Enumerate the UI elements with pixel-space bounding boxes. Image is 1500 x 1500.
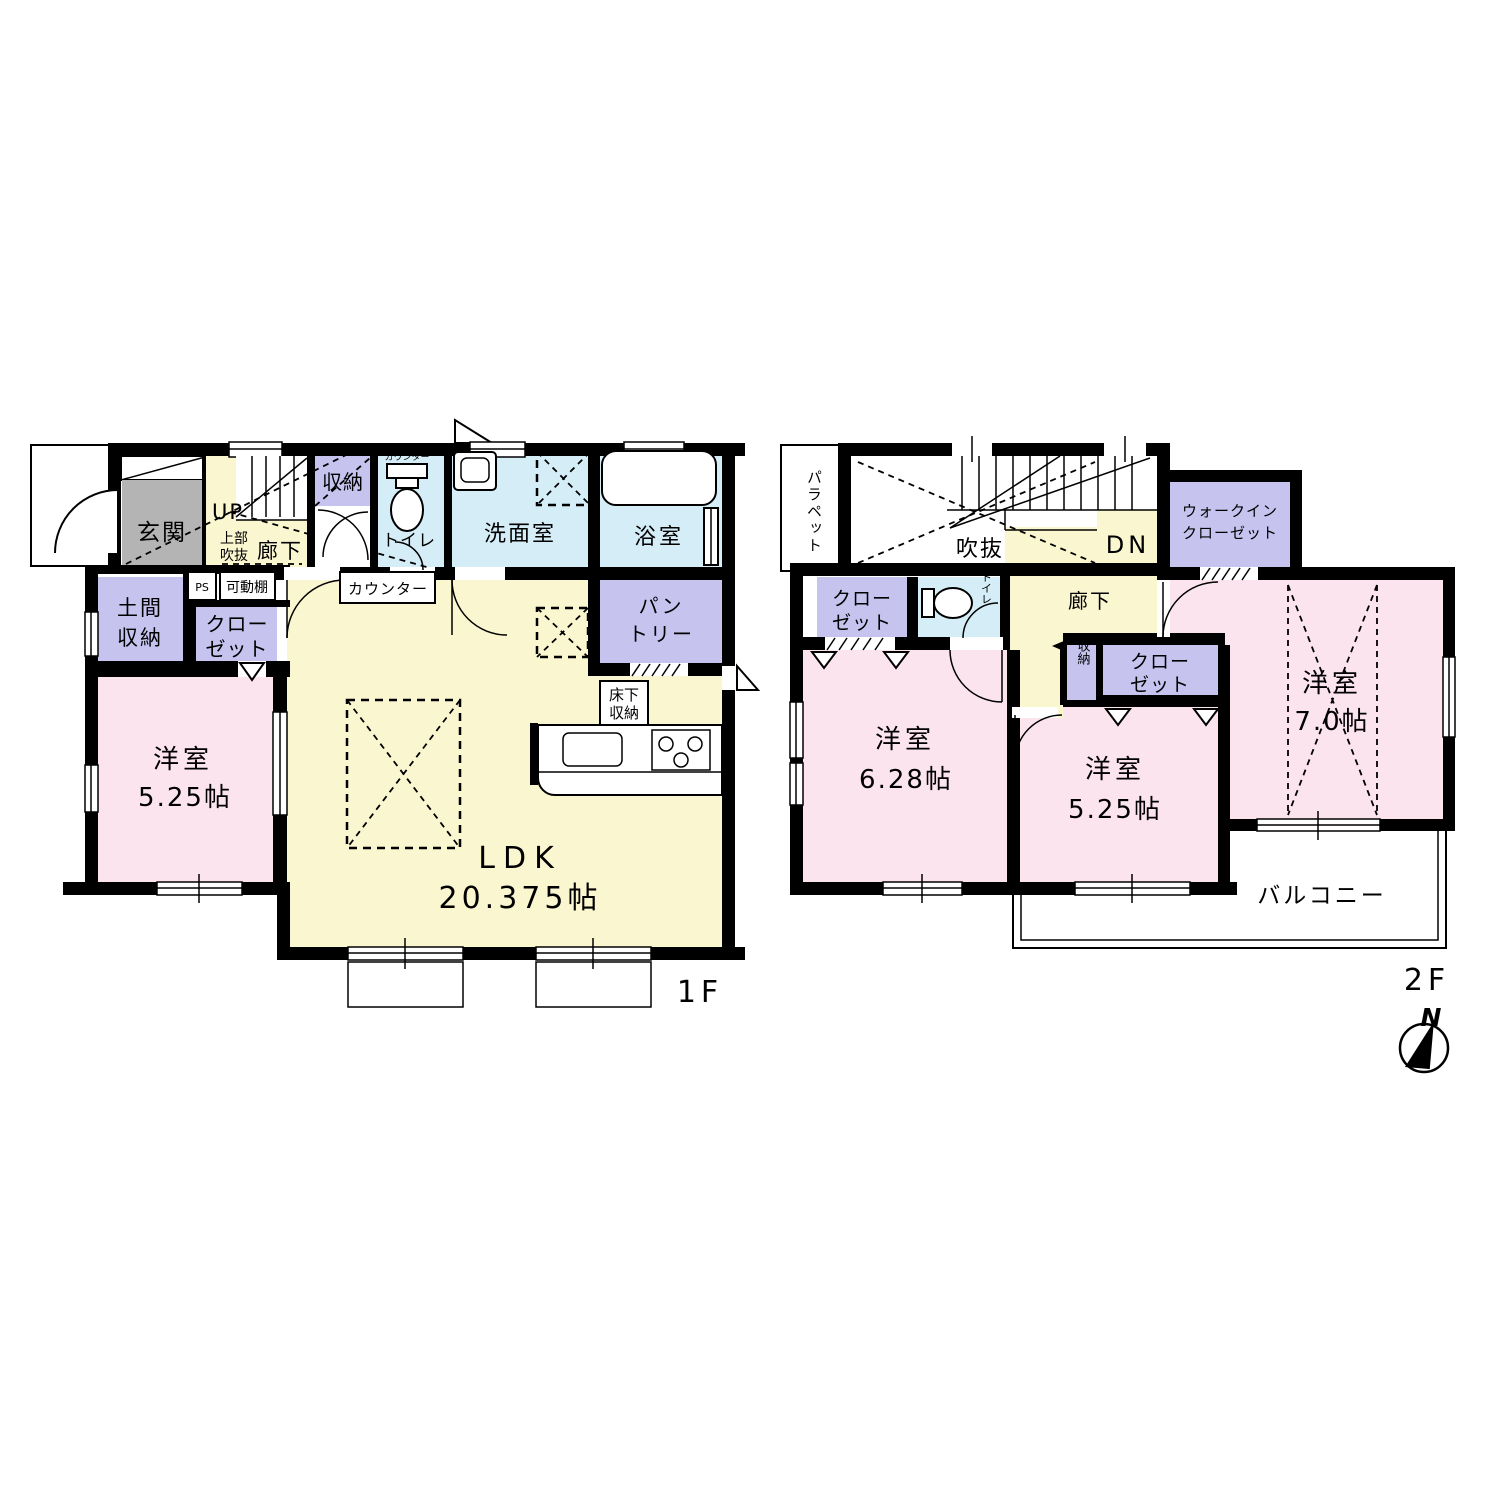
wall-closet-toilet-2f [907, 577, 918, 645]
label-ldk-1: LDK [478, 841, 562, 876]
wall-toilet-senmen [444, 443, 452, 567]
wall-bottom-1f [277, 947, 745, 960]
label-shuunou-1f: 収納 [322, 470, 364, 494]
label-closet-left-2: ゼット [832, 612, 892, 634]
label-closet1f-2: ゼット [206, 637, 269, 661]
floor2-plan: パラペット 吹抜 DN ウォークイン クローゼット クロー ゼット トイレ 廊下… [781, 436, 1455, 998]
room-rouka-2f-dn [1097, 510, 1157, 530]
label-rouka-1f: 廊下 [257, 539, 303, 563]
label-pantry-1: パン [639, 594, 684, 618]
opening-senmen [455, 567, 505, 580]
wall-525-left [1007, 650, 1020, 883]
floor1-plan: 玄関 UP 上部 吹抜 廊下 収納 カウンター トイレ 洗面室 浴室 パン トリ… [31, 420, 758, 1010]
room-youshitsu-525-1f [98, 677, 273, 882]
floorplan-page: 玄関 UP 上部 吹抜 廊下 収納 カウンター トイレ 洗面室 浴室 パン トリ… [0, 0, 1500, 1500]
label-joubu-2: 吹抜 [220, 548, 248, 564]
label-senmenshitsu: 洗面室 [484, 522, 556, 547]
label-closet-left-1: クロー [832, 588, 892, 610]
label-shuunou-2f: 収納 [1075, 639, 1091, 666]
opening-kitchen-door [722, 666, 735, 690]
label-wic-1: ウォークイン [1182, 502, 1278, 520]
wall-525-70-divider [1218, 645, 1230, 895]
label-ldk-2: 20.375帖 [439, 881, 602, 916]
floorplan-drawing: 玄関 UP 上部 吹抜 廊下 収納 カウンター トイレ 洗面室 浴室 パン トリ… [0, 0, 1500, 1500]
label-joubu-1: 上部 [220, 531, 248, 547]
wall-right-1f [722, 443, 735, 960]
label-pantry-2: トリー [628, 622, 694, 646]
wall-pantry-left [588, 580, 600, 676]
label-youshitsu525-1f-1: 洋室 [153, 745, 213, 775]
wall-wic-top [1157, 470, 1302, 482]
entry-door-arc-icon [55, 490, 118, 553]
wall-closet-top-1f [196, 600, 290, 607]
label-dn: DN [1106, 531, 1150, 559]
label-y525-1: 洋室 [1085, 755, 1145, 785]
vent-flag-icon [455, 420, 492, 443]
label-y628-2: 6.28帖 [859, 765, 953, 795]
wall-parapet-void [838, 443, 851, 573]
label-fukinuke-2f: 吹抜 [956, 537, 1004, 562]
label-compass-north: N [1421, 1003, 1442, 1032]
label-ps: PS [195, 581, 209, 594]
label-wic-2: クローゼット [1182, 524, 1278, 542]
label-floor1: 1F [677, 975, 723, 1010]
wall-wic-right [1290, 470, 1302, 580]
label-closet-mid-2: ゼット [1130, 674, 1190, 696]
wall-stair-right-2f [1157, 443, 1170, 583]
label-toilet-2f: トイレ [980, 572, 993, 605]
label-parapet: パラペット [805, 470, 823, 555]
label-youshitsu525-1f-2: 5.25帖 [138, 783, 232, 813]
label-counter-mid: カウンター [348, 580, 428, 598]
label-closet-mid-1: クロー [1130, 651, 1190, 673]
label-floor2: 2F [1404, 963, 1450, 998]
label-y525-2: 5.25帖 [1068, 795, 1162, 825]
label-doma-2: 収納 [117, 626, 163, 650]
wall-shuunou-left-2f [1060, 645, 1067, 705]
label-doma-1: 土間 [117, 596, 163, 620]
kitchen-counter-icon [538, 725, 722, 795]
label-balcony: バルコニー [1257, 883, 1387, 909]
washbasin-icon [454, 452, 496, 490]
label-yukashita-2: 収納 [609, 704, 639, 722]
wall-senmen-bath [588, 443, 600, 580]
label-counter-top: カウンター [384, 452, 429, 463]
back-door-swing-icon [737, 666, 758, 690]
label-toilet-1f: トイレ [382, 531, 436, 551]
label-y70-2: 7.0帖 [1294, 707, 1369, 737]
label-y628-1: 洋室 [875, 725, 935, 755]
wall-void-bottom [790, 563, 1157, 576]
label-y70-1: 洋室 [1302, 669, 1362, 699]
label-genkan: 玄関 [137, 520, 187, 546]
label-rouka-2f: 廊下 [1068, 589, 1112, 613]
opening-closet-left-2f [825, 637, 895, 650]
label-kadoudana: 可動棚 [226, 580, 268, 596]
label-closet1f-1: クロー [206, 612, 269, 636]
opening-628-door [950, 637, 1003, 650]
wall-genkan-divider [202, 456, 206, 568]
opening-hall-ldk [284, 567, 340, 580]
wall-closetmid-bottom [1096, 695, 1230, 707]
wall-kitchen-stub [530, 723, 538, 785]
compass-icon: N [1400, 1003, 1448, 1072]
stairs-up-icon [236, 456, 307, 520]
label-up: UP [212, 500, 244, 524]
label-yukashita-1: 床下 [609, 686, 639, 704]
wall-left-upper-1f [108, 443, 121, 490]
wall-stairs-shuunou [307, 443, 315, 570]
label-yokushitsu: 浴室 [634, 525, 684, 550]
